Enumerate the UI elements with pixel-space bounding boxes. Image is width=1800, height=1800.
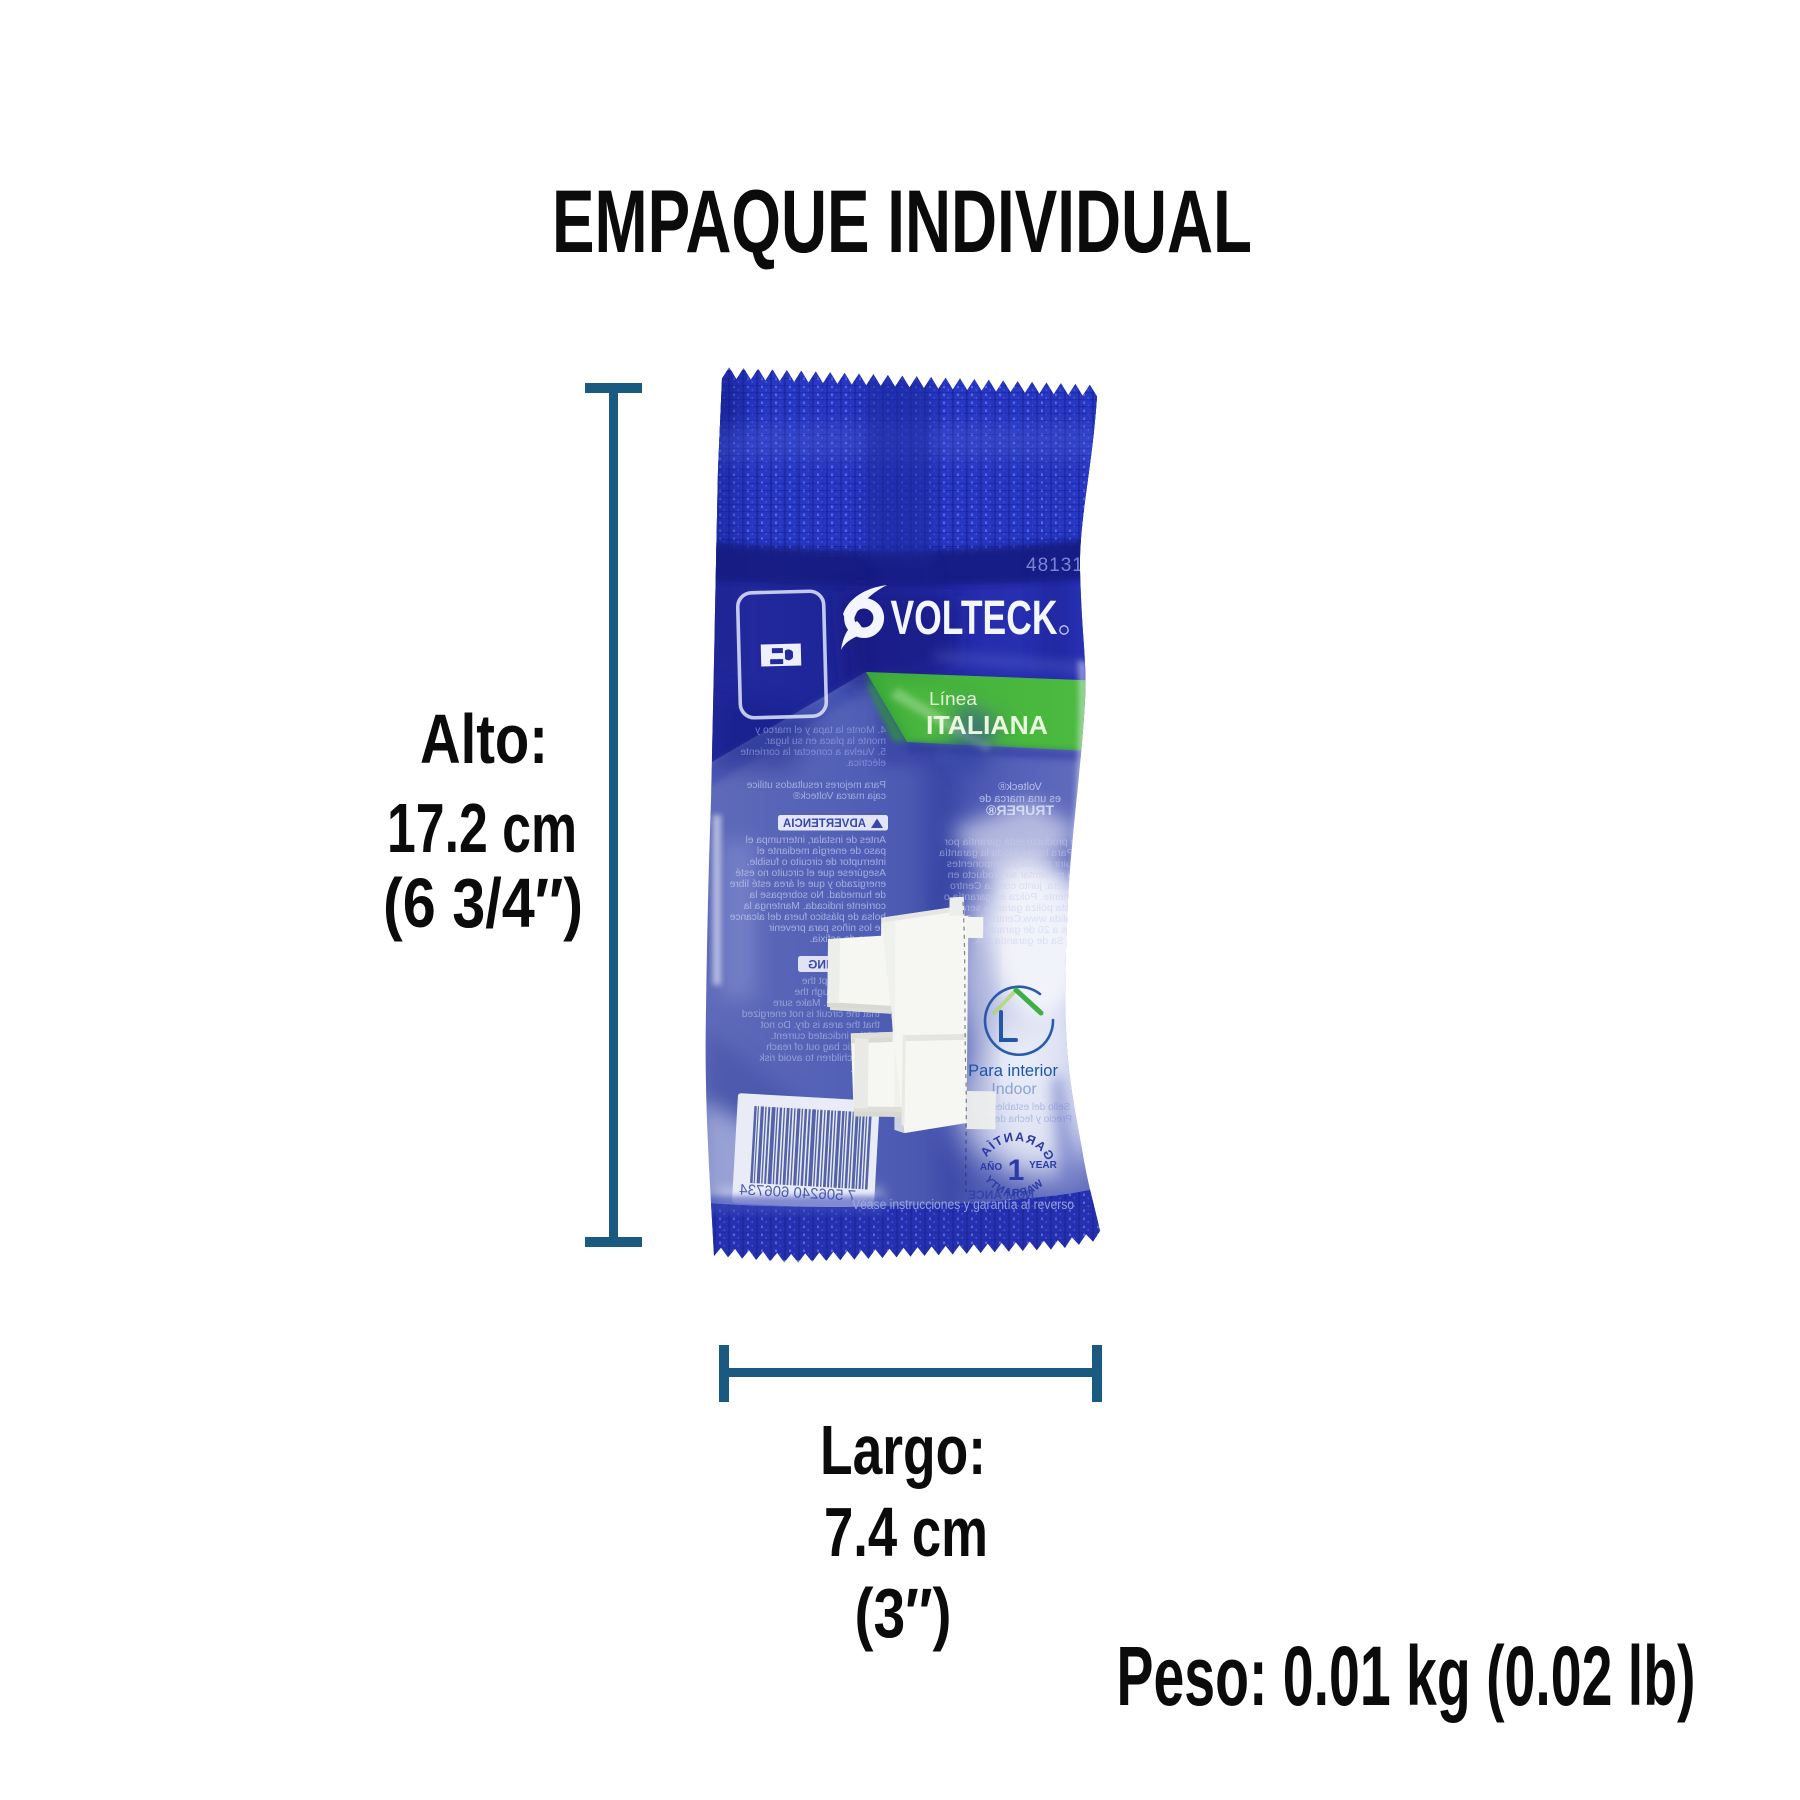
svg-text:(3′′): (3′′) — [855, 1574, 952, 1652]
svg-text:48131: 48131 — [1026, 555, 1084, 576]
svg-text:paso de energía mediante el: paso de energía mediante el — [757, 846, 886, 857]
svg-text:de humedad. No sobrepase la: de humedad. No sobrepase la — [749, 890, 886, 901]
svg-text:Volteck®: Volteck® — [998, 781, 1042, 793]
svg-text:VOLTECK: VOLTECK — [891, 592, 1058, 645]
svg-text:AÑO: AÑO — [980, 1160, 1002, 1173]
svg-text:17.2 cm: 17.2 cm — [387, 789, 577, 867]
svg-text:eléctrica.: eléctrica. — [845, 758, 886, 769]
svg-text:Véase instrucciones y garantía: Véase instrucciones y garantía al revers… — [852, 1197, 1074, 1212]
svg-text:corriente indicada. Mantenga l: corriente indicada. Mantenga la — [744, 901, 886, 912]
svg-text:TRUPER®: TRUPER® — [985, 802, 1054, 818]
svg-text:7.4 cm: 7.4 cm — [824, 1493, 988, 1571]
svg-text:Alto:: Alto: — [420, 700, 548, 778]
svg-text:Asegúrese que el circuito no e: Asegúrese que el circuito no esté — [735, 868, 886, 879]
svg-text:Indoor: Indoor — [991, 1081, 1037, 1098]
svg-text:Largo:: Largo: — [820, 1411, 986, 1489]
svg-text:ITALIANA: ITALIANA — [926, 712, 1048, 740]
svg-text:4. Monte la tapa y el marco y: 4. Monte la tapa y el marco y — [754, 725, 886, 736]
svg-text:Peso: 0.01 kg (0.02 lb): Peso: 0.01 kg (0.02 lb) — [1117, 1629, 1696, 1723]
svg-text:caja marca Volteck®: caja marca Volteck® — [793, 791, 886, 802]
svg-text:YEAR: YEAR — [1029, 1160, 1058, 1171]
svg-text:interruptor de circuito o fusi: interruptor de circuito o fusible. — [747, 857, 886, 868]
svg-text:de los niños para prevenir: de los niños para prevenir — [768, 923, 886, 934]
svg-text:Para mejores resultados utilic: Para mejores resultados utilice — [746, 780, 886, 791]
svg-text:(6 3/4′′): (6 3/4′′) — [383, 864, 583, 942]
svg-text:Antes de instalar, interrumpa: Antes de instalar, interrumpa el — [746, 835, 886, 846]
svg-text:energizado y que el área esté: energizado y que el área esté libre — [729, 879, 886, 890]
svg-text:ADVERTENCIA: ADVERTENCIA — [783, 818, 866, 830]
svg-text:1: 1 — [1008, 1154, 1025, 1187]
svg-text:EMPAQUE INDIVIDUAL: EMPAQUE INDIVIDUAL — [552, 171, 1252, 271]
svg-text:bolsa de plástico fuera del al: bolsa de plástico fuera del alcance — [729, 912, 886, 923]
svg-text:5. Vuelva a conectar la corrie: 5. Vuelva a conectar la corriente — [740, 747, 886, 758]
svg-text:Línea: Línea — [929, 689, 978, 709]
svg-text:that the area is dry. Do not: that the area is dry. Do not — [761, 1020, 880, 1031]
svg-text:monte la placa en su lugar.: monte la placa en su lugar. — [764, 736, 886, 747]
